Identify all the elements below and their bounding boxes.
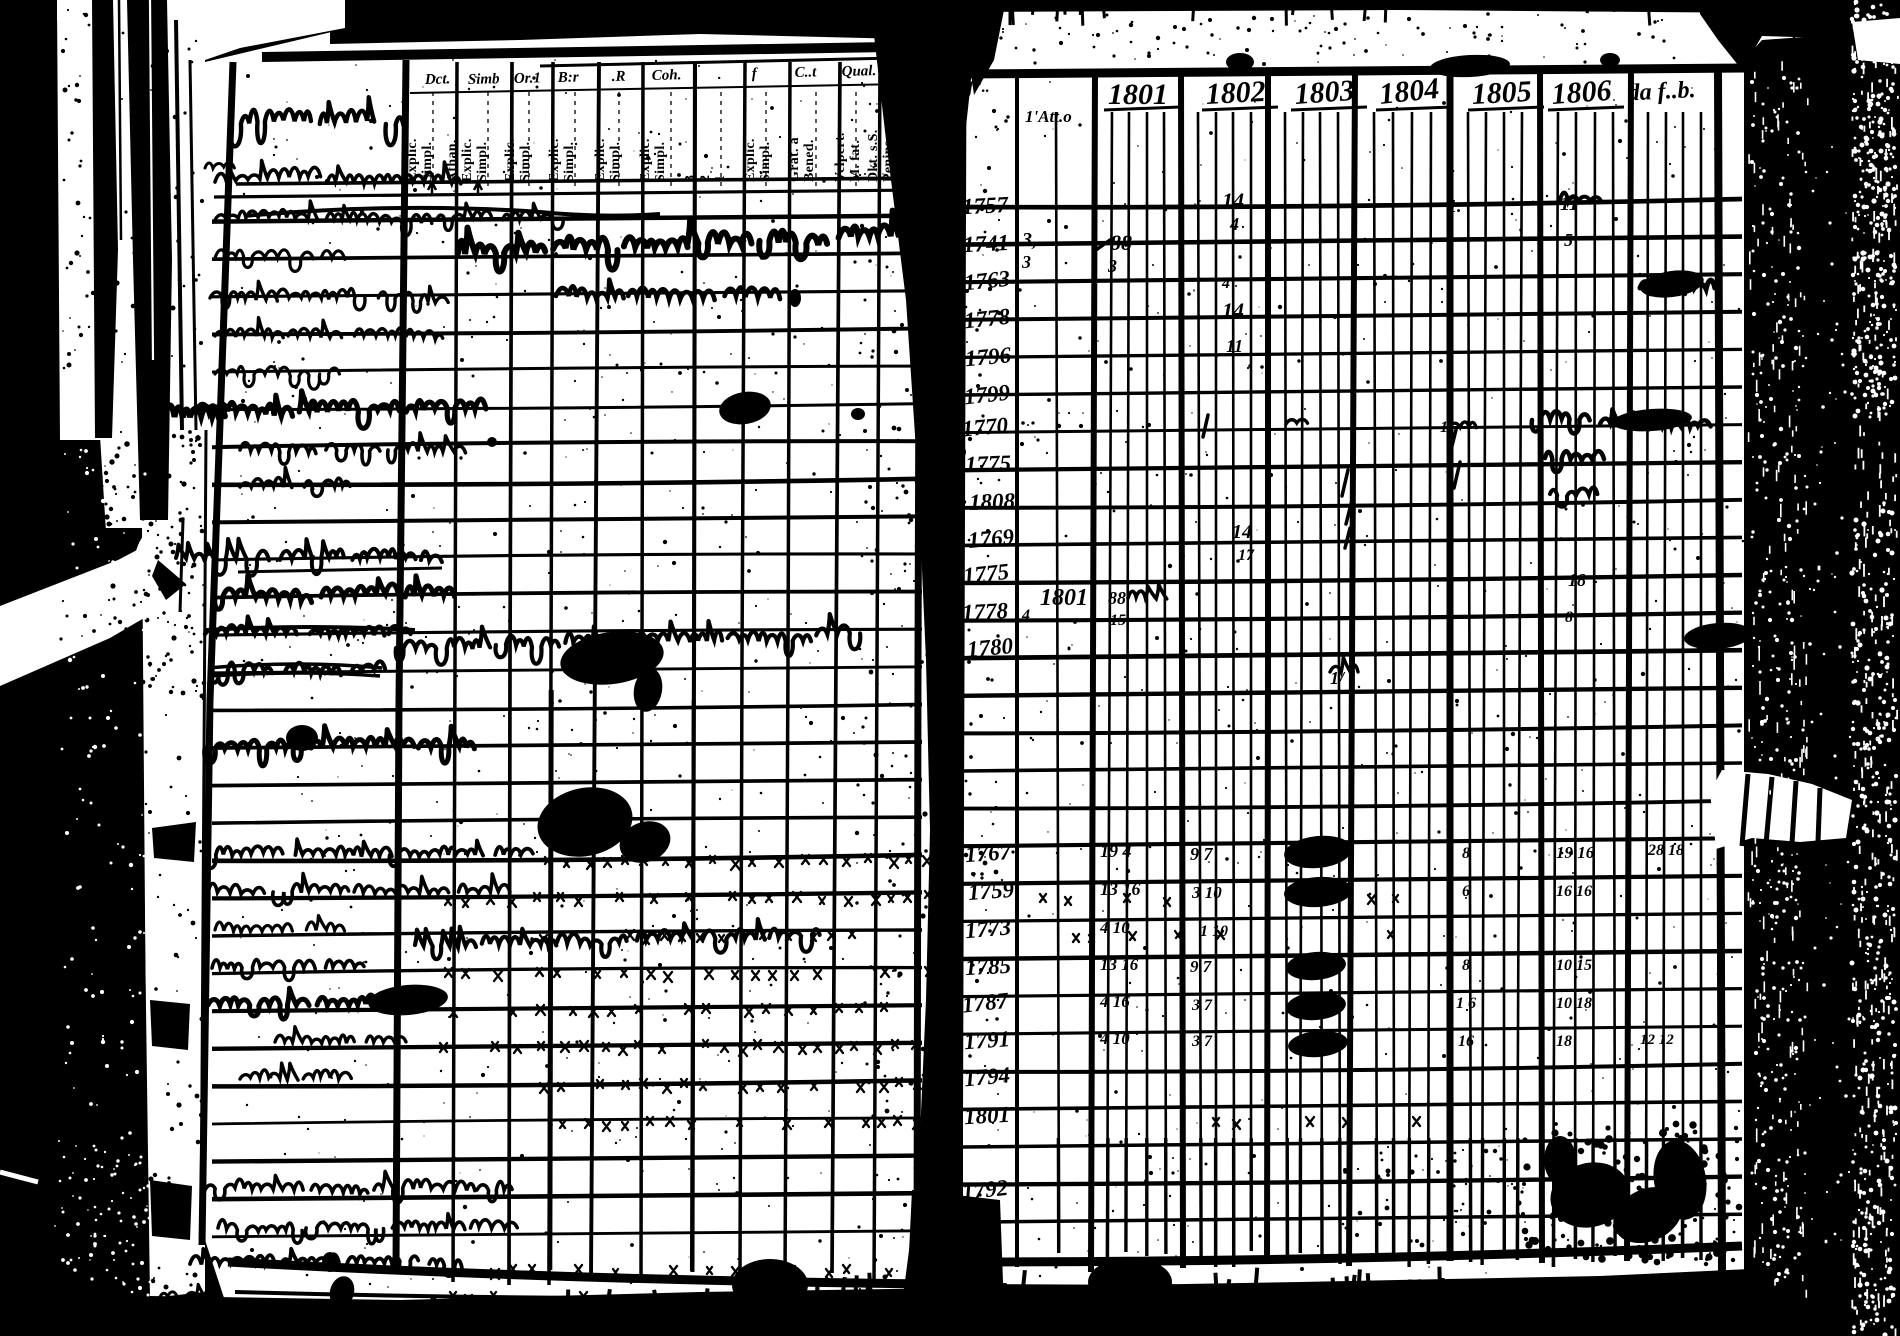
svg-text:14: 14 — [1232, 521, 1252, 543]
svg-text:10 15: 10 15 — [1556, 957, 1592, 974]
svg-text:1785: 1785 — [964, 953, 1011, 980]
svg-text:Simpl.: Simpl. — [653, 142, 668, 182]
svg-text:1763: 1763 — [963, 266, 1011, 296]
svg-text:.R: .R — [612, 69, 626, 85]
svg-text:7: 7 — [938, 1103, 949, 1125]
svg-text:15: 15 — [1110, 612, 1126, 629]
svg-text:3: 3 — [1107, 256, 1117, 276]
svg-text:1787: 1787 — [961, 988, 1011, 1018]
svg-text:4: 4 — [1221, 275, 1230, 292]
svg-text:Bened.: Bened. — [802, 139, 817, 182]
svg-text:1803: 1803 — [1293, 74, 1355, 111]
svg-text:28 18: 28 18 — [1647, 842, 1684, 859]
svg-text:14: 14 — [1222, 298, 1244, 323]
svg-text:14: 14 — [1222, 188, 1244, 213]
svg-text:1769: 1769 — [967, 524, 1016, 553]
svg-text:7: 7 — [938, 1029, 949, 1051]
svg-text:Explic.: Explic. — [743, 138, 758, 182]
svg-text:1792: 1792 — [961, 1175, 1009, 1205]
svg-text:13 16: 13 16 — [1100, 955, 1139, 974]
svg-text:3: 3 — [683, 175, 698, 182]
svg-text:Explic.: Explic. — [503, 138, 518, 182]
svg-text:1804: 1804 — [1378, 72, 1441, 111]
svg-text:1759: 1759 — [967, 877, 1015, 905]
svg-text:f.'..: f.'.. — [968, 79, 990, 96]
svg-text:Explic.: Explic. — [460, 138, 475, 182]
svg-text:Grat. a: Grat. a — [787, 137, 802, 182]
svg-text:1801: 1801 — [1108, 78, 1168, 111]
svg-text:9 7: 9 7 — [1190, 844, 1214, 864]
svg-text:3 10: 3 10 — [1191, 883, 1222, 902]
svg-text:16: 16 — [1458, 1033, 1474, 1050]
svg-text:9 7: 9 7 — [1190, 957, 1213, 976]
svg-text:1808: 1808 — [969, 488, 1016, 515]
svg-text:C..t: C..t — [794, 64, 817, 81]
svg-text:8: 8 — [1565, 609, 1573, 626]
svg-text:Simpl.: Simpl. — [758, 142, 773, 182]
svg-text:1794: 1794 — [963, 1062, 1011, 1091]
svg-text:1801: 1801 — [1040, 585, 1088, 611]
svg-text:8: 8 — [1462, 957, 1470, 974]
svg-text:4: 4 — [1229, 214, 1239, 234]
svg-text:1.: 1. — [1448, 196, 1462, 216]
svg-text:Simpl.: Simpl. — [562, 142, 577, 182]
svg-text:Or.1: Or.1 — [514, 70, 542, 87]
svg-text:1757: 1757 — [961, 192, 1010, 219]
svg-text:7: 7 — [938, 991, 949, 1013]
svg-text:3 7: 3 7 — [1191, 997, 1213, 1014]
svg-text:1741: 1741 — [962, 230, 1009, 257]
svg-text:Dct.: Dct. — [424, 71, 451, 88]
svg-text:1: 1 — [713, 175, 728, 182]
svg-text:1796: 1796 — [964, 342, 1013, 371]
svg-text:1775: 1775 — [965, 451, 1012, 478]
svg-text:88: 88 — [1108, 588, 1126, 608]
svg-text:1 6: 1 6 — [1456, 995, 1476, 1012]
svg-text:12 12: 12 12 — [1640, 1032, 1674, 1048]
svg-text:1767: 1767 — [964, 839, 1013, 867]
svg-text:1770: 1770 — [961, 413, 1010, 442]
svg-text:17: 17 — [1238, 547, 1255, 564]
svg-text:.: . — [718, 67, 722, 83]
svg-text:7: 7 — [938, 1065, 949, 1087]
svg-text:5: 5 — [1564, 230, 1573, 250]
svg-text:4 16: 4 16 — [1099, 992, 1130, 1011]
svg-text:3,: 3, — [1021, 229, 1037, 251]
svg-text:Simpl.: Simpl. — [518, 142, 533, 182]
svg-text:88: 88 — [1110, 230, 1132, 255]
svg-text:1775: 1775 — [962, 559, 1010, 589]
svg-text:1799: 1799 — [963, 380, 1012, 410]
svg-text:Dkt. s.S.: Dkt. s.S. — [866, 130, 881, 183]
svg-text:2: 2 — [698, 175, 713, 182]
svg-text:1791: 1791 — [963, 1026, 1011, 1054]
svg-text:Coh.: Coh. — [652, 67, 682, 84]
svg-text:1778: 1778 — [961, 598, 1009, 625]
svg-text:1801: 1801 — [963, 1102, 1010, 1129]
svg-text:Simpl.: Simpl. — [608, 142, 623, 182]
svg-text:Penins.: Penins. — [881, 137, 896, 182]
svg-text:1806: 1806 — [1550, 74, 1612, 111]
svg-text:3: 3 — [1021, 252, 1031, 272]
svg-text:Velpert.: Velpert. — [833, 132, 848, 182]
svg-text:1773: 1773 — [964, 914, 1012, 943]
svg-text:Qual.: Qual. — [841, 63, 876, 80]
svg-text:19 4: 19 4 — [1100, 841, 1132, 861]
svg-text:3 7: 3 7 — [1191, 1033, 1213, 1050]
svg-text:Simpl.: Simpl. — [475, 142, 490, 182]
svg-text:1805: 1805 — [1471, 75, 1533, 111]
svg-text:Explic.: Explic. — [638, 138, 653, 182]
svg-text:da f..b.: da f..b. — [1627, 77, 1696, 107]
svg-text:4 10: 4 10 — [1099, 918, 1130, 937]
svg-text:13 16: 13 16 — [1100, 879, 1141, 899]
svg-text:B:r: B:r — [557, 69, 579, 86]
svg-text:4 10: 4 10 — [1099, 1029, 1130, 1048]
svg-text:Explic.: Explic. — [593, 138, 608, 182]
svg-text:4: 4 — [1021, 607, 1030, 624]
svg-text:1'Att.o: 1'Att.o — [1025, 107, 1072, 126]
svg-text:10 18: 10 18 — [1556, 995, 1592, 1012]
svg-text:1780: 1780 — [966, 633, 1015, 662]
svg-text:1778: 1778 — [963, 304, 1012, 334]
svg-text:18: 18 — [1568, 570, 1586, 590]
svg-text:1802: 1802 — [1205, 75, 1267, 111]
svg-text:18: 18 — [1556, 1033, 1572, 1050]
svg-text:Explic.: Explic. — [547, 138, 562, 182]
svg-text:Simb: Simb — [468, 71, 501, 88]
svg-text:Alig. m.: Alig. m. — [896, 133, 911, 182]
svg-text:16 16: 16 16 — [1556, 883, 1592, 900]
svg-text:T.: T. — [884, 63, 896, 79]
svg-text:11: 11 — [1226, 336, 1243, 356]
svg-text:8: 8 — [1462, 845, 1470, 862]
